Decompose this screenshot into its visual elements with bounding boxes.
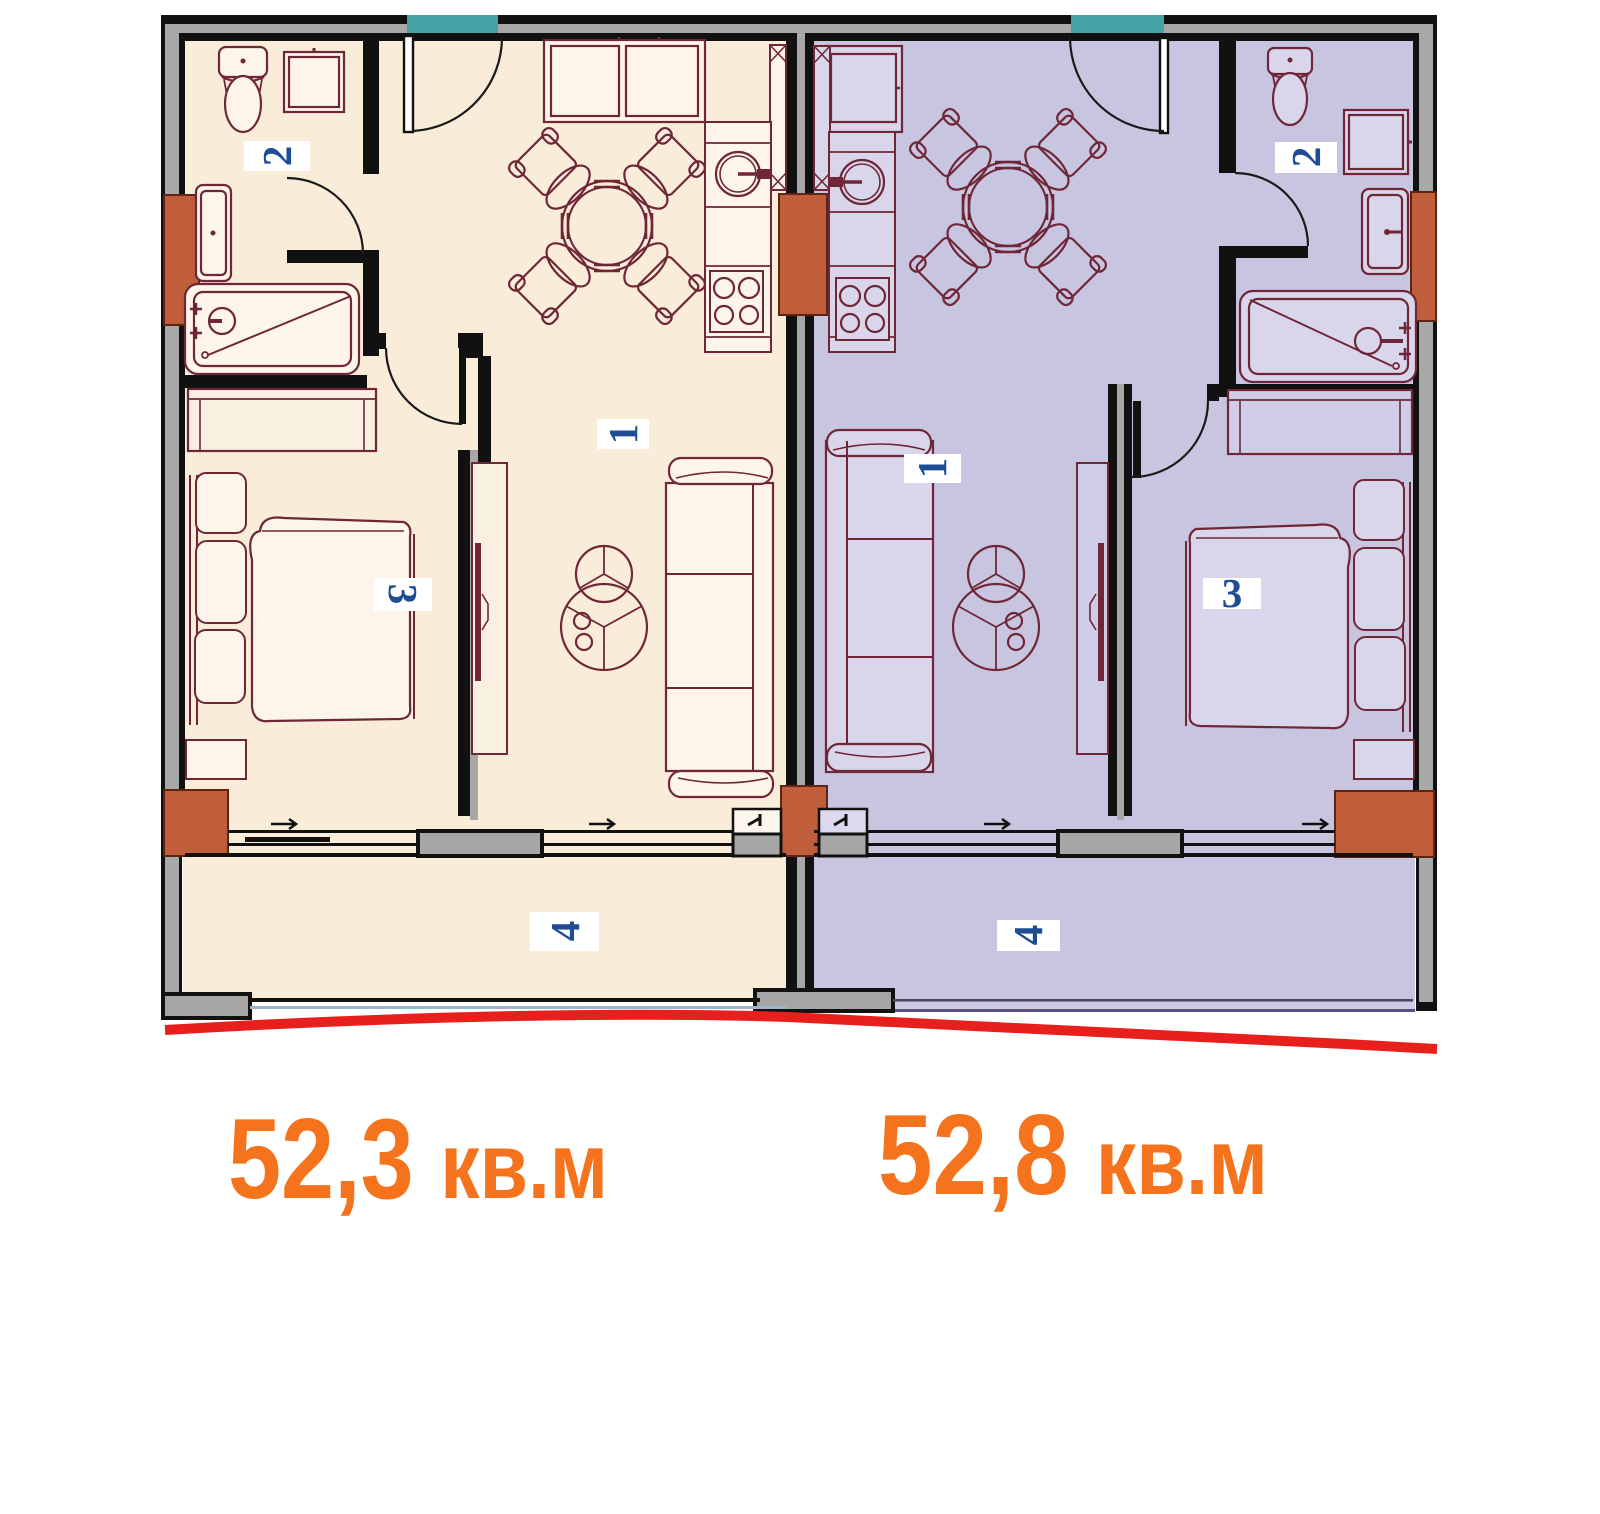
svg-text:3: 3	[380, 584, 426, 605]
svg-text:1: 1	[909, 458, 955, 479]
svg-text:3: 3	[1222, 570, 1243, 616]
svg-text:2: 2	[254, 146, 300, 167]
svg-text:52,3 кв.м: 52,3 кв.м	[228, 1096, 608, 1223]
svg-text:52,8 кв.м: 52,8 кв.м	[878, 1092, 1268, 1219]
svg-text:2: 2	[1283, 147, 1329, 168]
svg-text:4: 4	[1005, 925, 1051, 946]
svg-text:1: 1	[600, 424, 646, 445]
svg-text:4: 4	[542, 921, 588, 942]
